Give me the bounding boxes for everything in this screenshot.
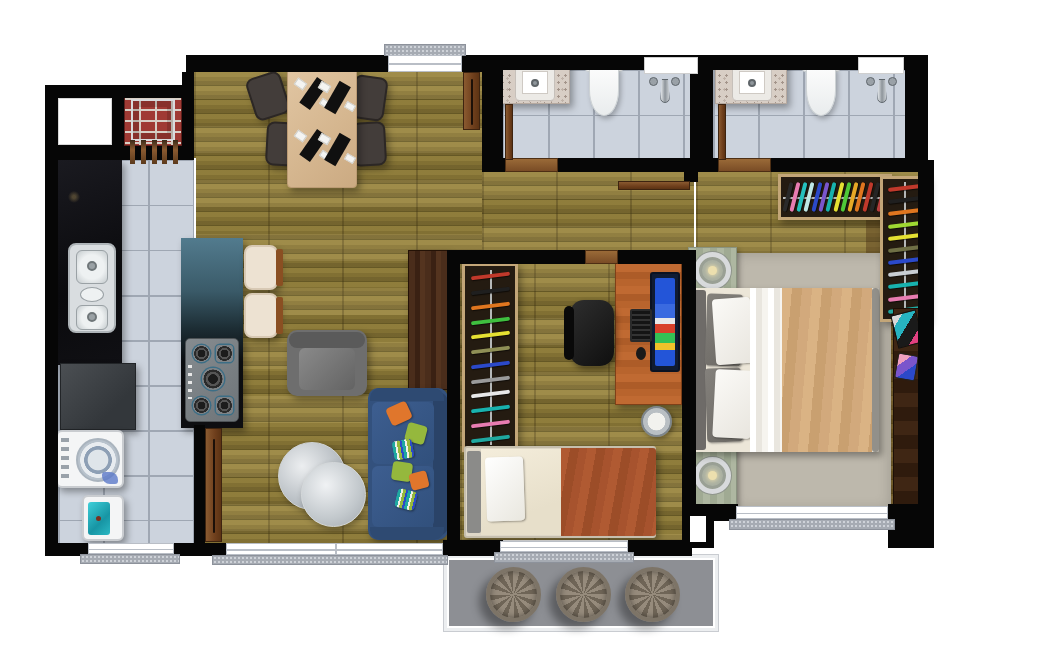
computer-monitor: [650, 272, 680, 372]
bath1-door-threshold: [505, 158, 558, 172]
shower-diverter: [877, 79, 887, 103]
bath2-sink-drain: [748, 79, 756, 87]
tv-panel: [408, 250, 448, 390]
keyboard: [630, 309, 652, 342]
shaft-opening: [690, 516, 706, 542]
sheet-fold: [750, 288, 786, 452]
grill-tool: [130, 140, 135, 164]
washing-machine: [56, 430, 124, 488]
bedroom1-window: [500, 541, 628, 552]
hanging-clothes-item: [470, 361, 509, 370]
bedroom1-door-threshold: [585, 250, 618, 264]
bath2-toilet-bowl: [806, 64, 836, 116]
burner-2: [216, 345, 233, 362]
wall-niche-bottom: [45, 145, 124, 160]
hanging-clothes-item: [888, 257, 921, 265]
wall-top-dining-left: [186, 55, 388, 72]
tank-drain: [96, 516, 101, 521]
wall-bedroom1-north-b: [618, 250, 682, 264]
hall-door-leaf: [463, 72, 480, 130]
armchair-back: [289, 332, 365, 348]
floor-plan: [0, 0, 1039, 672]
hanging-clothes-item: [888, 208, 921, 216]
lamp-top: [694, 252, 731, 289]
shower-knob: [866, 77, 875, 86]
bedroom1-window-sill: [494, 552, 634, 563]
washer-detail: [102, 472, 118, 484]
door-handle: [213, 439, 215, 533]
sink-drain-bottom: [87, 312, 97, 322]
bath1-shower-valves: [648, 76, 682, 106]
hanging-clothes-item: [888, 184, 921, 192]
wall-right-outer-bedroom: [918, 160, 934, 518]
grill-tools: [130, 140, 178, 164]
sink-drain-top: [87, 261, 97, 271]
service-window: [88, 543, 174, 554]
place-setting-2: [318, 80, 358, 116]
balcony-planter-3: [625, 567, 680, 622]
shower-knob: [649, 77, 658, 86]
living-window: [226, 543, 443, 555]
grill-tool: [173, 140, 178, 164]
wall-bedroom1-west: [447, 250, 460, 543]
service-window-sill: [80, 554, 180, 564]
hanging-clothes-item: [888, 196, 921, 204]
single-bed: [464, 446, 656, 538]
sink-basin-mid: [80, 287, 104, 302]
sofa-armrest-bottom: [370, 527, 444, 540]
washer-controls: [61, 438, 69, 478]
single-bed-blanket: [561, 448, 656, 536]
laundry-tank: [82, 495, 124, 541]
double-bed-blanket: [782, 288, 872, 452]
monitor-screen: [655, 278, 675, 366]
wall-bedroom1-north-a: [447, 250, 585, 264]
shower-knob: [671, 77, 680, 86]
hanging-clothes-item: [888, 281, 921, 289]
pillow-white-1: [712, 297, 755, 365]
wall-bath-south-c: [771, 158, 918, 172]
bar-stool-1: [244, 245, 278, 290]
door-handle: [471, 79, 473, 125]
cooktop: [185, 338, 239, 422]
burner-4: [193, 397, 210, 414]
armchair-seat: [299, 348, 355, 390]
single-bed-pillow: [485, 456, 525, 521]
kitchen-sink: [68, 243, 116, 333]
mouse: [636, 347, 646, 360]
grill-tool: [162, 140, 167, 164]
grill-grate: [131, 99, 175, 141]
bedroom2-window-sill: [729, 519, 895, 530]
grill-tool: [141, 140, 146, 164]
place-setting-4: [318, 132, 358, 168]
pillow-white-2: [712, 369, 754, 439]
sofa: [368, 388, 448, 540]
lamp-bottom: [694, 457, 731, 494]
burner-5: [216, 397, 233, 414]
hanging-clothes-item: [470, 390, 509, 399]
balcony-planter-2: [556, 567, 611, 622]
hanging-clothes-item: [888, 233, 921, 241]
hanging-clothes-item: [888, 269, 921, 277]
side-table-2: [301, 462, 366, 527]
hanging-clothes-item: [470, 316, 509, 325]
sofa-armrest-top: [370, 388, 444, 401]
bath1-sink-drain: [531, 79, 539, 87]
balcony-planter-1: [486, 567, 541, 622]
burner-3: [202, 368, 224, 390]
bath1-shower-niche: [644, 57, 698, 74]
bedroom2-window: [736, 506, 888, 519]
double-bed: [692, 288, 879, 452]
dining-window: [388, 55, 462, 72]
double-bed-foot-rail: [872, 288, 879, 452]
smartphone: [894, 352, 919, 381]
grill-tool: [152, 140, 157, 164]
wall-bath-south-b: [558, 158, 718, 172]
hanging-clothes-item: [470, 434, 509, 443]
wall-right-outer-top: [905, 55, 928, 172]
sofa-back: [433, 392, 448, 536]
hanging-clothes-item: [888, 294, 921, 302]
wall-bath1-west: [482, 55, 503, 172]
throw-pillow-striped-1: [392, 438, 415, 460]
living-window-sill: [212, 555, 448, 565]
refrigerator: [60, 363, 136, 430]
armchair: [287, 330, 367, 396]
hanging-clothes-item: [470, 302, 509, 311]
chair-backrest: [564, 306, 574, 360]
bedroom1-wardrobe: [462, 263, 518, 452]
shower-diverter: [660, 79, 670, 103]
hanging-clothes-item: [470, 420, 509, 429]
chair-seat: [570, 300, 614, 366]
bath1-door-leaf: [505, 104, 513, 160]
wall-grill-stub: [182, 72, 194, 160]
shower-knob: [888, 77, 897, 86]
cooktop-knobs: [188, 365, 192, 399]
hanging-clothes-item: [470, 405, 509, 414]
hanging-clothes-item: [470, 287, 509, 296]
single-bed-headboard: [467, 451, 481, 533]
hanging-clothes-item: [470, 375, 509, 384]
wall-service-stub: [194, 425, 205, 556]
wall-bedrooms-divider: [682, 250, 696, 546]
hanging-clothes-item: [470, 346, 509, 355]
bath2-shower-valves: [865, 76, 899, 106]
service-niche: [58, 98, 112, 145]
bath1-toilet-bowl: [589, 64, 619, 116]
bedroom2-wardrobe-top: [778, 174, 892, 220]
hanging-clothes-item: [888, 245, 921, 253]
bar-stool-2: [244, 293, 278, 338]
bath2-shower-niche: [858, 57, 904, 74]
bath2-door-leaf: [718, 104, 726, 160]
bedroom2-door-leaf: [618, 181, 690, 190]
service-door-leaf: [205, 428, 222, 542]
hanging-clothes-item: [470, 272, 509, 281]
burner-1: [193, 345, 210, 362]
wall-bath-south-a: [495, 158, 505, 172]
hanging-clothes-item: [888, 221, 921, 229]
bath2-door-threshold: [718, 158, 771, 172]
office-chair: [556, 292, 622, 376]
waste-bin: [641, 406, 672, 437]
hanging-clothes-item: [470, 331, 509, 340]
